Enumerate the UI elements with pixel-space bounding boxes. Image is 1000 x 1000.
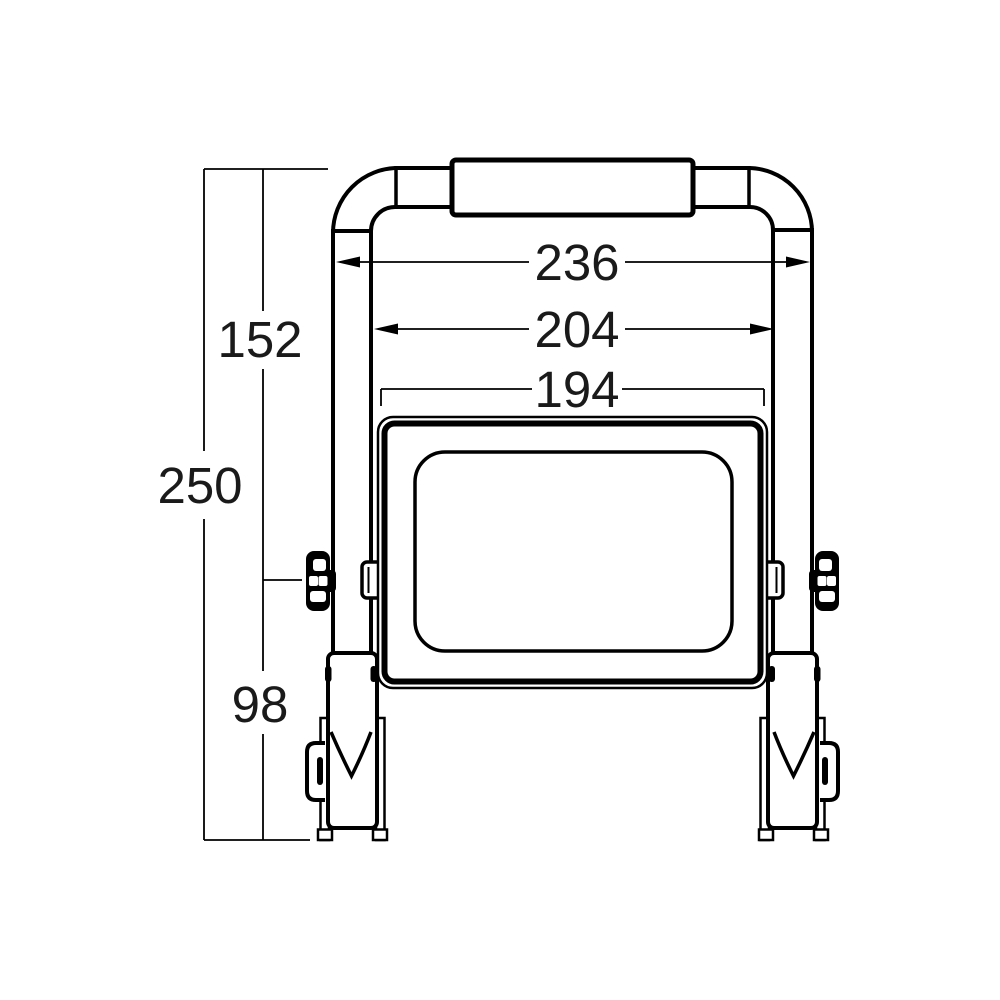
pivot-rivet-right bbox=[814, 666, 821, 682]
upper-height-value: 152 bbox=[217, 311, 302, 368]
lens-window bbox=[415, 452, 732, 651]
arrowhead-left bbox=[374, 324, 398, 335]
stand-foot-right bbox=[759, 653, 838, 840]
foot-pad-left bbox=[759, 830, 773, 841]
stand-foot-left bbox=[307, 653, 387, 840]
body-width-value: 194 bbox=[534, 361, 619, 418]
clip-pin bbox=[822, 757, 828, 785]
lower-height-value: 98 bbox=[232, 676, 289, 733]
arrowhead-right bbox=[786, 257, 810, 268]
overall-width-value: 236 bbox=[534, 234, 619, 291]
handle-grip bbox=[452, 160, 693, 215]
clip-pin bbox=[317, 757, 323, 785]
overall-height-value: 250 bbox=[157, 457, 242, 514]
pivot-rivet-left bbox=[325, 666, 332, 682]
floodlight-body bbox=[378, 417, 767, 688]
arrowhead-right bbox=[750, 324, 774, 335]
arrowhead-left bbox=[336, 257, 360, 268]
technical-drawing-page: 236 204 194 152 250 98 bbox=[0, 0, 1000, 1000]
dimension-drawing-canvas: 236 204 194 152 250 98 bbox=[0, 0, 1000, 1000]
foot-pad-right bbox=[373, 830, 387, 841]
foot-pad-right bbox=[814, 830, 828, 841]
pivot-rivet-right bbox=[371, 666, 378, 682]
inner-frame-width-value: 204 bbox=[534, 301, 619, 358]
foot-pad-left bbox=[318, 830, 332, 841]
pivot-rivet-left bbox=[769, 666, 776, 682]
